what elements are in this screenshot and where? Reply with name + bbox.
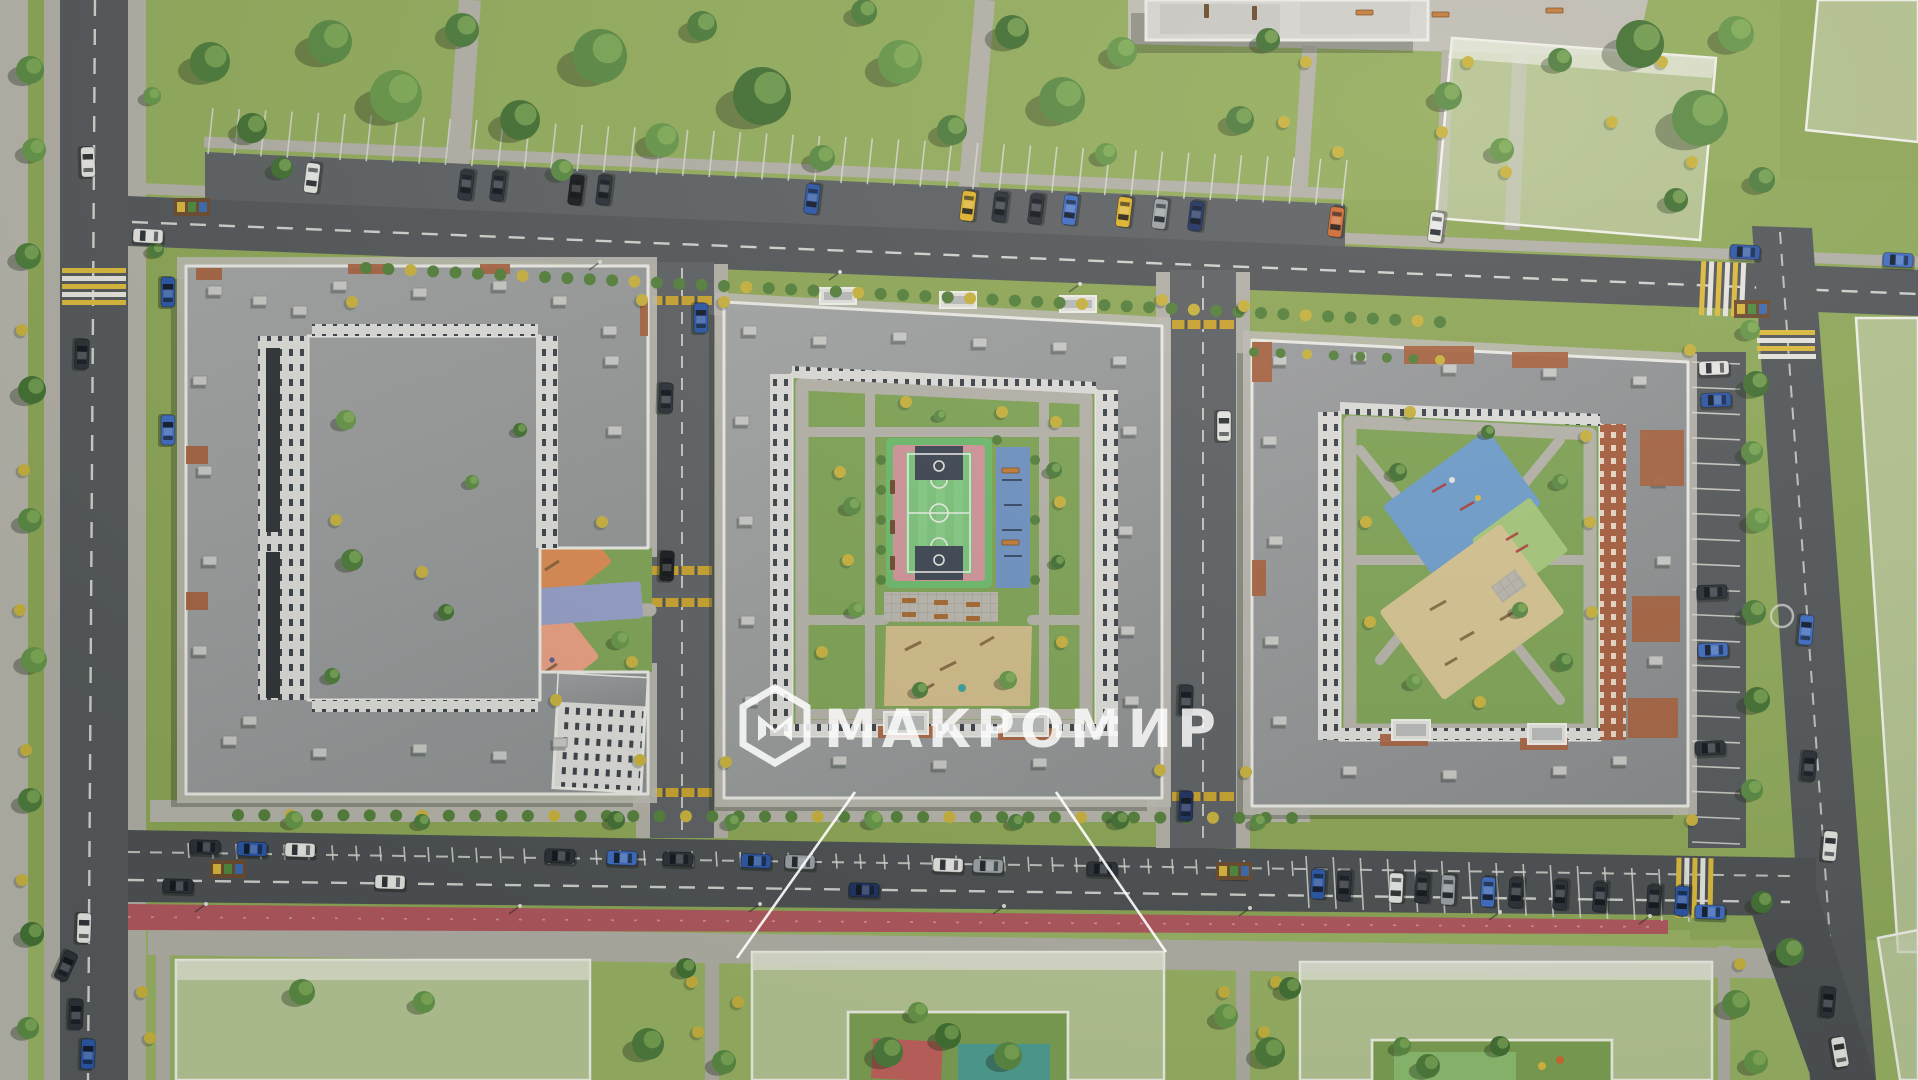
aerial-masterplan-render: МАКРОМИР — [0, 0, 1918, 1080]
watermark-text: МАКРОМИР — [824, 699, 1221, 760]
light-overlay — [0, 0, 1918, 1080]
